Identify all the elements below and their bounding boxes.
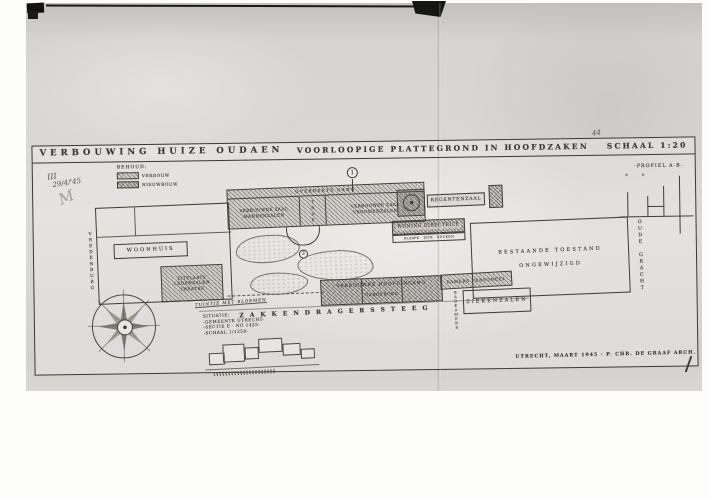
room-regentenzaal: REGENTENZAAL xyxy=(427,192,485,207)
corner-slash-mark xyxy=(685,356,692,373)
room-converted-left: VERBOUWDE ZAAL MANNENZALEN xyxy=(228,197,301,229)
room-annex: ZITPLAATS LEDENZALEN THEATER xyxy=(160,264,223,302)
left-block-divider-h xyxy=(97,231,231,237)
room-woonhuis-label: WOONHUIS xyxy=(127,246,175,254)
situatie-block: SITUATIE: -GEMEENTE UTRECHT- -SECTIE E ·… xyxy=(203,307,338,375)
top-wing-gallery-label: OVERDEKTE GANG xyxy=(295,187,356,195)
legend-swatch-verbouw-icon xyxy=(117,172,139,179)
compass-rose-icon xyxy=(87,290,160,363)
credit-line: UTRECHT, MAART 1945 · P. CHR. DE GRAAF A… xyxy=(515,350,696,361)
project-title: VERBOUWING HUIZE OUDAEN xyxy=(39,146,283,160)
room-woning-sub-label: SLAAPK · ZITK · KEUKEN xyxy=(404,234,455,240)
room-woonhuis: WOONHUIS xyxy=(113,241,188,259)
profile-post-4 xyxy=(679,176,681,234)
street-label-right: OUDE GRACHT xyxy=(636,220,646,304)
room-ornament xyxy=(396,189,425,217)
small-hatched-room xyxy=(488,185,503,209)
room-annex-line-3: THEATER xyxy=(180,285,205,291)
room-woning-label: WONING DIRECTRICE xyxy=(396,222,460,230)
situatie-sketch xyxy=(204,332,326,376)
floor-plan: VREDENBURG WOONHUIS ZITPLAATS LEDENZALEN… xyxy=(84,162,656,343)
scan-top-line xyxy=(46,4,438,7)
situatie-sketch-box xyxy=(222,344,245,363)
photo-of-drawing: VERBOUWING HUIZE OUDAEN VOORLOOPIGE PLAT… xyxy=(26,3,702,391)
left-block-divider-v xyxy=(134,207,136,235)
scanned-drawing-page: VERBOUWING HUIZE OUDAEN VOORLOOPIGE PLAT… xyxy=(0,0,710,499)
room-badkamers-label: BADKAMERS xyxy=(453,290,459,324)
entrance-label-2: GARDEROBE xyxy=(322,290,442,300)
existing-hall-line-2: ONGEWIJZIGD xyxy=(519,260,582,269)
handwritten-note: III 29/4/'45 M xyxy=(47,168,85,208)
entrance-label-1: VERBOUWDE HOOFDINGANG xyxy=(321,280,441,290)
room-existing-hall: BESTAANDE TOESTAND ONGEWIJZIGD xyxy=(470,217,631,299)
profile-post-3 xyxy=(663,186,665,216)
fold-crease xyxy=(437,3,441,391)
room-stair-label: TRAP xyxy=(310,199,316,223)
scan-corner-mark-2 xyxy=(28,11,38,19)
reference-marker-2-number: 2 xyxy=(302,251,305,258)
existing-hall-line-1: BESTAANDE TOESTAND xyxy=(498,246,602,257)
title-row: VERBOUWING HUIZE OUDAEN VOORLOOPIGE PLAT… xyxy=(32,137,694,163)
situatie-sketch-box-hatched xyxy=(258,338,283,353)
room-stair-core: TRAP xyxy=(300,196,327,226)
legend-label-verbouw: VERBOUW xyxy=(142,172,170,178)
room-converted-right-line-2: VROUWENZALEN xyxy=(353,207,398,214)
ornament-circle-icon xyxy=(402,194,420,212)
drawing-scale: SCHAAL 1:20 xyxy=(607,141,688,152)
situatie-sketch-box xyxy=(244,347,259,360)
situatie-tick-row xyxy=(214,369,276,376)
drawing-sheet: VERBOUWING HUIZE OUDAEN VOORLOOPIGE PLAT… xyxy=(31,136,698,375)
page-number-note: 44 xyxy=(592,129,602,138)
room-converted-left-line-2: MANNENZALEN xyxy=(243,212,284,219)
garden-edge-scallop xyxy=(227,287,323,297)
room-woning-sub: SLAAPK · ZITK · KEUKEN xyxy=(392,232,465,243)
garden-shrub-2 xyxy=(297,249,374,282)
drawing-title: VOORLOOPIGE PLATTEGROND IN HOOFDZAKEN xyxy=(297,142,589,156)
legend-heading: BEHOUD: xyxy=(117,165,178,172)
situatie-sketch-box xyxy=(282,343,301,356)
situatie-sketch-box xyxy=(301,348,315,359)
